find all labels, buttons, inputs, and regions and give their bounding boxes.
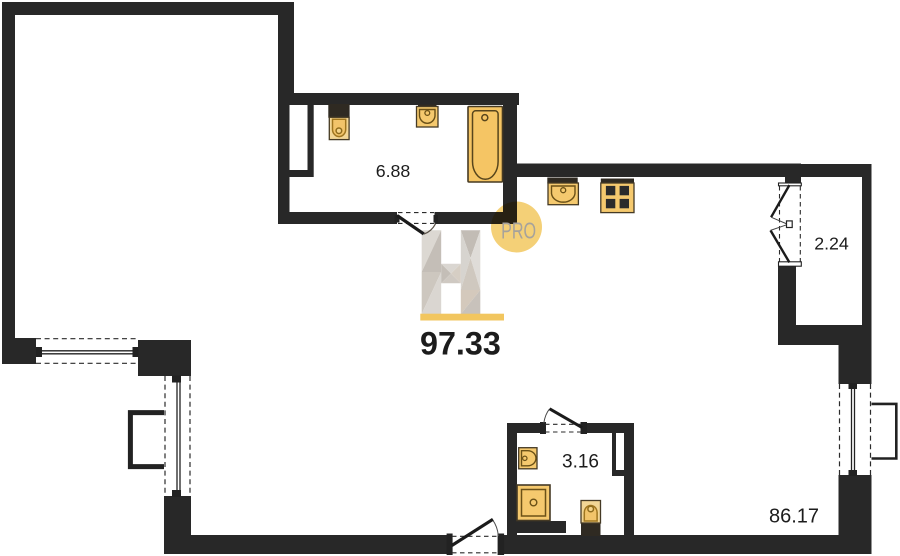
svg-text:3.16: 3.16 [562, 451, 599, 472]
svg-text:97.33: 97.33 [420, 325, 501, 361]
svg-text:2.24: 2.24 [814, 234, 849, 254]
svg-text:PRO: PRO [501, 218, 536, 244]
svg-text:86.17: 86.17 [769, 506, 819, 528]
svg-text:6.88: 6.88 [376, 161, 411, 181]
